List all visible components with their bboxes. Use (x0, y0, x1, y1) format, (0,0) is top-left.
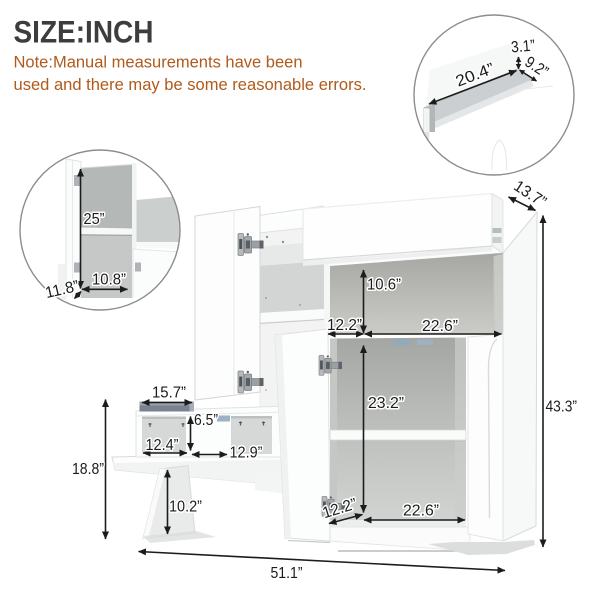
svg-text:12.2”: 12.2” (327, 317, 362, 334)
svg-text:12.4”: 12.4” (146, 437, 179, 454)
svg-text:used and there may be some rea: used and there may be some reasonable er… (14, 75, 367, 94)
svg-text:6.5”: 6.5” (194, 412, 218, 429)
svg-text:43.3”: 43.3” (546, 399, 578, 416)
svg-text:Note:Manual measurements have: Note:Manual measurements have been (14, 53, 303, 72)
svg-text:10.6”: 10.6” (367, 277, 401, 294)
svg-text:15.7”: 15.7” (152, 385, 186, 402)
svg-text:10.2”: 10.2” (169, 499, 202, 516)
svg-text:22.6”: 22.6” (422, 318, 458, 335)
svg-text:22.6”: 22.6” (403, 503, 439, 520)
svg-text:12.9”: 12.9” (230, 445, 263, 462)
svg-text:51.1”: 51.1” (271, 565, 303, 582)
svg-text:SIZE:INCH: SIZE:INCH (14, 14, 154, 50)
svg-text:10.8”: 10.8” (92, 272, 126, 289)
svg-text:25”: 25” (84, 211, 105, 228)
svg-text:23.2”: 23.2” (368, 395, 404, 412)
svg-text:18.8”: 18.8” (72, 461, 104, 478)
